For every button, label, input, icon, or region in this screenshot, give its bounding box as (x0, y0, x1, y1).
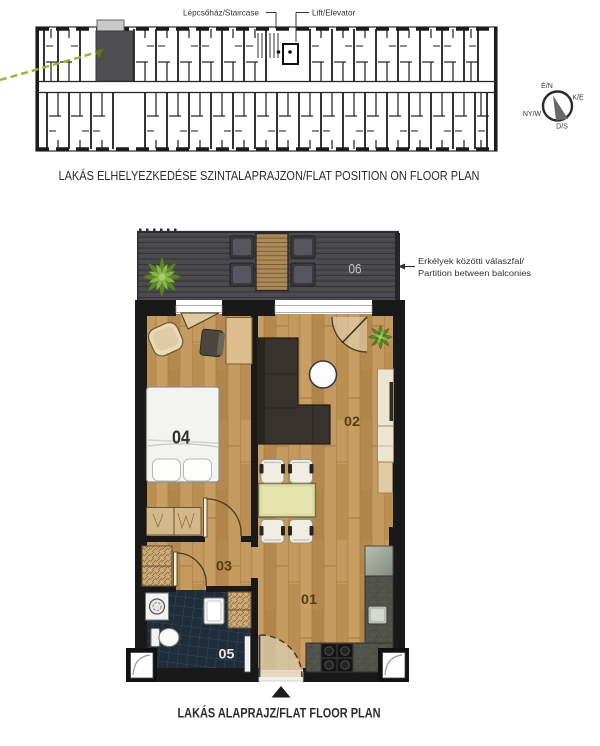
svg-text:Erkélyek közötti válaszfal/: Erkélyek közötti válaszfal/ (418, 257, 525, 266)
svg-text:LAKÁS ELHELYEZKEDÉSE SZINTALAP: LAKÁS ELHELYEZKEDÉSE SZINTALAPRAJZON/FLA… (59, 168, 480, 183)
svg-text:LAKÁS ALAPRAJZ/FLAT FLOOR PLAN: LAKÁS ALAPRAJZ/FLAT FLOOR PLAN (178, 706, 381, 721)
svg-text:04: 04 (172, 428, 190, 448)
svg-text:06: 06 (349, 261, 362, 277)
svg-text:Lépcsőház/Staircase: Lépcsőház/Staircase (183, 9, 259, 18)
svg-text:02: 02 (344, 413, 360, 429)
svg-text:NY/W: NY/W (523, 111, 542, 118)
svg-text:05: 05 (219, 646, 235, 662)
svg-text:K/E: K/E (572, 95, 584, 102)
svg-text:É/N: É/N (541, 81, 553, 90)
svg-text:D/S: D/S (556, 124, 568, 131)
svg-text:01: 01 (301, 591, 317, 607)
svg-text:03: 03 (216, 558, 232, 574)
svg-text:Partition between balconies: Partition between balconies (418, 269, 531, 278)
svg-text:Lift/Elevator: Lift/Elevator (312, 9, 356, 18)
